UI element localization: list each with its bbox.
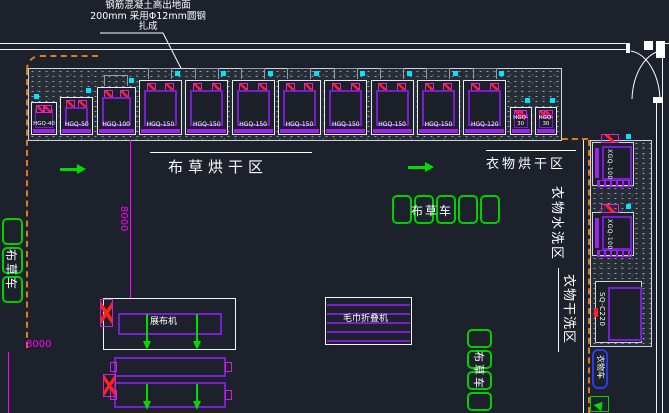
dryer-unit[interactable]: HGQ-100 <box>97 87 136 135</box>
dryer-unit[interactable]: HGQ-150 <box>371 80 414 135</box>
vent-bracket-icon <box>473 68 497 79</box>
cyan-chip-icon <box>129 78 134 83</box>
motor-icon <box>601 204 619 213</box>
washer-grill <box>597 250 632 257</box>
dryer-unit[interactable]: HGQ-150 <box>324 80 367 135</box>
dryer-model-label: HGQ-150 <box>279 122 320 128</box>
cyan-chip-icon <box>550 98 555 103</box>
electric-box-icon <box>100 299 113 327</box>
dryer-model-label: HGQ-150 <box>418 122 459 128</box>
dryer-base <box>33 129 55 133</box>
dryer-model-label: HGQ-150 <box>325 122 366 128</box>
dryer-unit[interactable]: HGQ-30 <box>535 107 557 135</box>
zone-clothes-drying: 衣物烘干区 <box>486 153 566 172</box>
feed-arrow-icon <box>146 384 148 402</box>
vent-bracket-icon <box>148 68 172 79</box>
linen-cart[interactable] <box>467 392 492 411</box>
dryer-model-label: HGQ-150 <box>140 122 181 128</box>
dryer-unit[interactable]: HGQ-40 <box>31 102 57 135</box>
dryer-model-label: HGQ-30 <box>511 115 531 127</box>
washer-model-label: XGQ-100 <box>606 219 613 250</box>
dryer-unit[interactable]: HGQ-150 <box>232 80 275 135</box>
linen-cart[interactable] <box>480 195 500 224</box>
washer-side-bar <box>595 218 599 248</box>
zone-clothes-washing: 衣物水洗区 <box>549 186 568 261</box>
dryer-base <box>99 129 134 133</box>
cyan-chip-icon <box>626 134 631 139</box>
dry-cleaner-drum <box>608 287 642 341</box>
dryer-model-label: HGQ-100 <box>98 122 135 128</box>
motor-icon <box>601 134 619 143</box>
ironer-machine[interactable] <box>114 382 226 408</box>
drawing-overlay <box>0 0 669 413</box>
dimension-line <box>130 140 131 298</box>
linen-cart-label: 布草车 <box>471 351 487 390</box>
door-arc-left <box>631 51 660 101</box>
dryer-model-label: HGQ-30 <box>536 115 556 127</box>
dryer-unit[interactable]: HGQ-150 <box>278 80 321 135</box>
folder-roller <box>327 340 410 342</box>
zone-linen-drying: 布草烘干区 <box>168 156 268 177</box>
dryer-unit[interactable]: HGQ-120 <box>463 80 506 135</box>
door-arc-right <box>632 51 660 99</box>
washer-grill <box>597 180 632 187</box>
cyan-chip-icon <box>525 98 530 103</box>
dimension-8000-left: 8000 <box>26 340 51 350</box>
vent-bracket-icon <box>287 68 311 79</box>
dryer-base <box>141 129 180 133</box>
cyan-chip-icon <box>453 71 458 76</box>
door-panel-a <box>644 41 653 50</box>
spreader-label: 展布机 <box>150 317 177 327</box>
cyan-chip-icon <box>86 88 91 93</box>
dryer-unit[interactable]: HGQ-30 <box>510 107 532 135</box>
vent-bracket-icon <box>334 68 358 79</box>
flow-arrow-icon <box>60 168 77 171</box>
electric-box-icon <box>103 374 116 397</box>
towel-folder-label: 毛巾折叠机 <box>343 314 388 324</box>
cyan-chip-icon <box>626 204 631 209</box>
washer-unit[interactable]: XGQ-100 <box>592 212 634 256</box>
feed-arrow-icon <box>146 314 148 342</box>
folder-roller <box>327 331 410 333</box>
cyan-chip-icon <box>268 71 273 76</box>
cad-canvas: 钢筋混凝土高出地面 200mm 采用Φ12mm圆钢 扎成 HGQ-40 <box>0 0 669 413</box>
zone-overline <box>486 150 576 151</box>
dryer-base <box>465 129 504 133</box>
dryer-model-label: HGQ-150 <box>372 122 413 128</box>
washer-unit[interactable]: XGQ-100 <box>592 142 634 186</box>
dryer-base <box>280 129 319 133</box>
vent-bracket-icon <box>241 68 265 79</box>
folder-roller <box>327 304 410 306</box>
ironer-end-tab <box>225 390 232 400</box>
vent-bracket-icon <box>104 75 128 86</box>
dryer-base <box>419 129 458 133</box>
feed-arrow-icon <box>196 384 198 402</box>
flow-arrow-icon <box>408 166 425 169</box>
dryer-base <box>373 129 412 133</box>
vent-bracket-icon <box>426 68 450 79</box>
zone-overline <box>150 152 312 153</box>
dryer-base <box>512 129 530 133</box>
ironer-end-tab <box>225 362 232 372</box>
ironer-end-tab <box>110 362 117 372</box>
construction-note: 钢筋混凝土高出地面 200mm 采用Φ12mm圆钢 扎成 <box>78 1 218 33</box>
washer-model-label: XGQ-100 <box>606 149 613 180</box>
direction-arrow-icon <box>590 396 609 412</box>
dryer-unit[interactable]: HGQ-50 <box>60 97 93 135</box>
dryer-model-label: HGQ-50 <box>61 122 92 128</box>
dryer-base <box>537 129 555 133</box>
cyan-chip-icon <box>34 94 39 99</box>
dryer-base <box>62 129 91 133</box>
dimension-8000-vertical: 8000 <box>118 206 128 231</box>
dryer-row: HGQ-40 HGQ-50 HGQ-100 <box>28 68 560 139</box>
clothes-cart[interactable]: 衣物车 <box>592 349 608 389</box>
dry-cleaner-model-label: SQ-C220 <box>598 292 606 326</box>
dryer-model-label: HGQ-150 <box>186 122 227 128</box>
note-line-3: 扎成 <box>78 22 218 33</box>
washer-side-bar <box>595 148 599 178</box>
linen-cart-label: 布草车 <box>411 202 453 219</box>
cyan-chip-icon <box>360 71 365 76</box>
cyan-chip-icon <box>407 71 412 76</box>
linen-cart[interactable] <box>458 195 478 224</box>
door-jamb-left <box>626 44 630 53</box>
linen-cart-label: 布草车 <box>3 249 20 291</box>
dryer-base <box>187 129 226 133</box>
linen-cart[interactable] <box>2 218 23 245</box>
vent-bracket-icon <box>380 68 404 79</box>
feed-arrow-icon <box>196 314 198 342</box>
ironer-machine[interactable] <box>114 357 226 377</box>
cyan-chip-icon <box>221 71 226 76</box>
dryer-base <box>234 129 273 133</box>
red-mark-icon <box>594 308 598 317</box>
dryer-model-label: HGQ-40 <box>32 121 56 127</box>
dimension-line <box>8 352 9 413</box>
zone-clothes-dry-cleaning: 衣物干洗区 <box>561 274 580 344</box>
dryer-unit[interactable]: HGQ-150 <box>185 80 228 135</box>
linen-cart[interactable] <box>392 195 412 224</box>
cyan-chip-icon <box>499 71 504 76</box>
linen-cart[interactable] <box>467 329 492 348</box>
cyan-chip-icon <box>314 71 319 76</box>
door-stop <box>653 97 663 103</box>
clothes-cart-label: 衣物车 <box>595 355 606 379</box>
dryer-unit[interactable]: HGQ-150 <box>417 80 460 135</box>
note-line-1: 钢筋混凝土高出地面 <box>78 1 218 12</box>
door-panel-b <box>656 41 665 58</box>
boundary-top <box>40 55 98 57</box>
dry-cleaner-unit[interactable]: SQ-C220 <box>595 281 642 343</box>
dryer-model-label: HGQ-150 <box>233 122 274 128</box>
vent-bracket-icon <box>195 68 219 79</box>
dryer-unit[interactable]: HGQ-150 <box>139 80 182 135</box>
cyan-chip-icon <box>175 71 180 76</box>
dryer-base <box>326 129 365 133</box>
dryer-model-label: HGQ-120 <box>464 122 505 128</box>
